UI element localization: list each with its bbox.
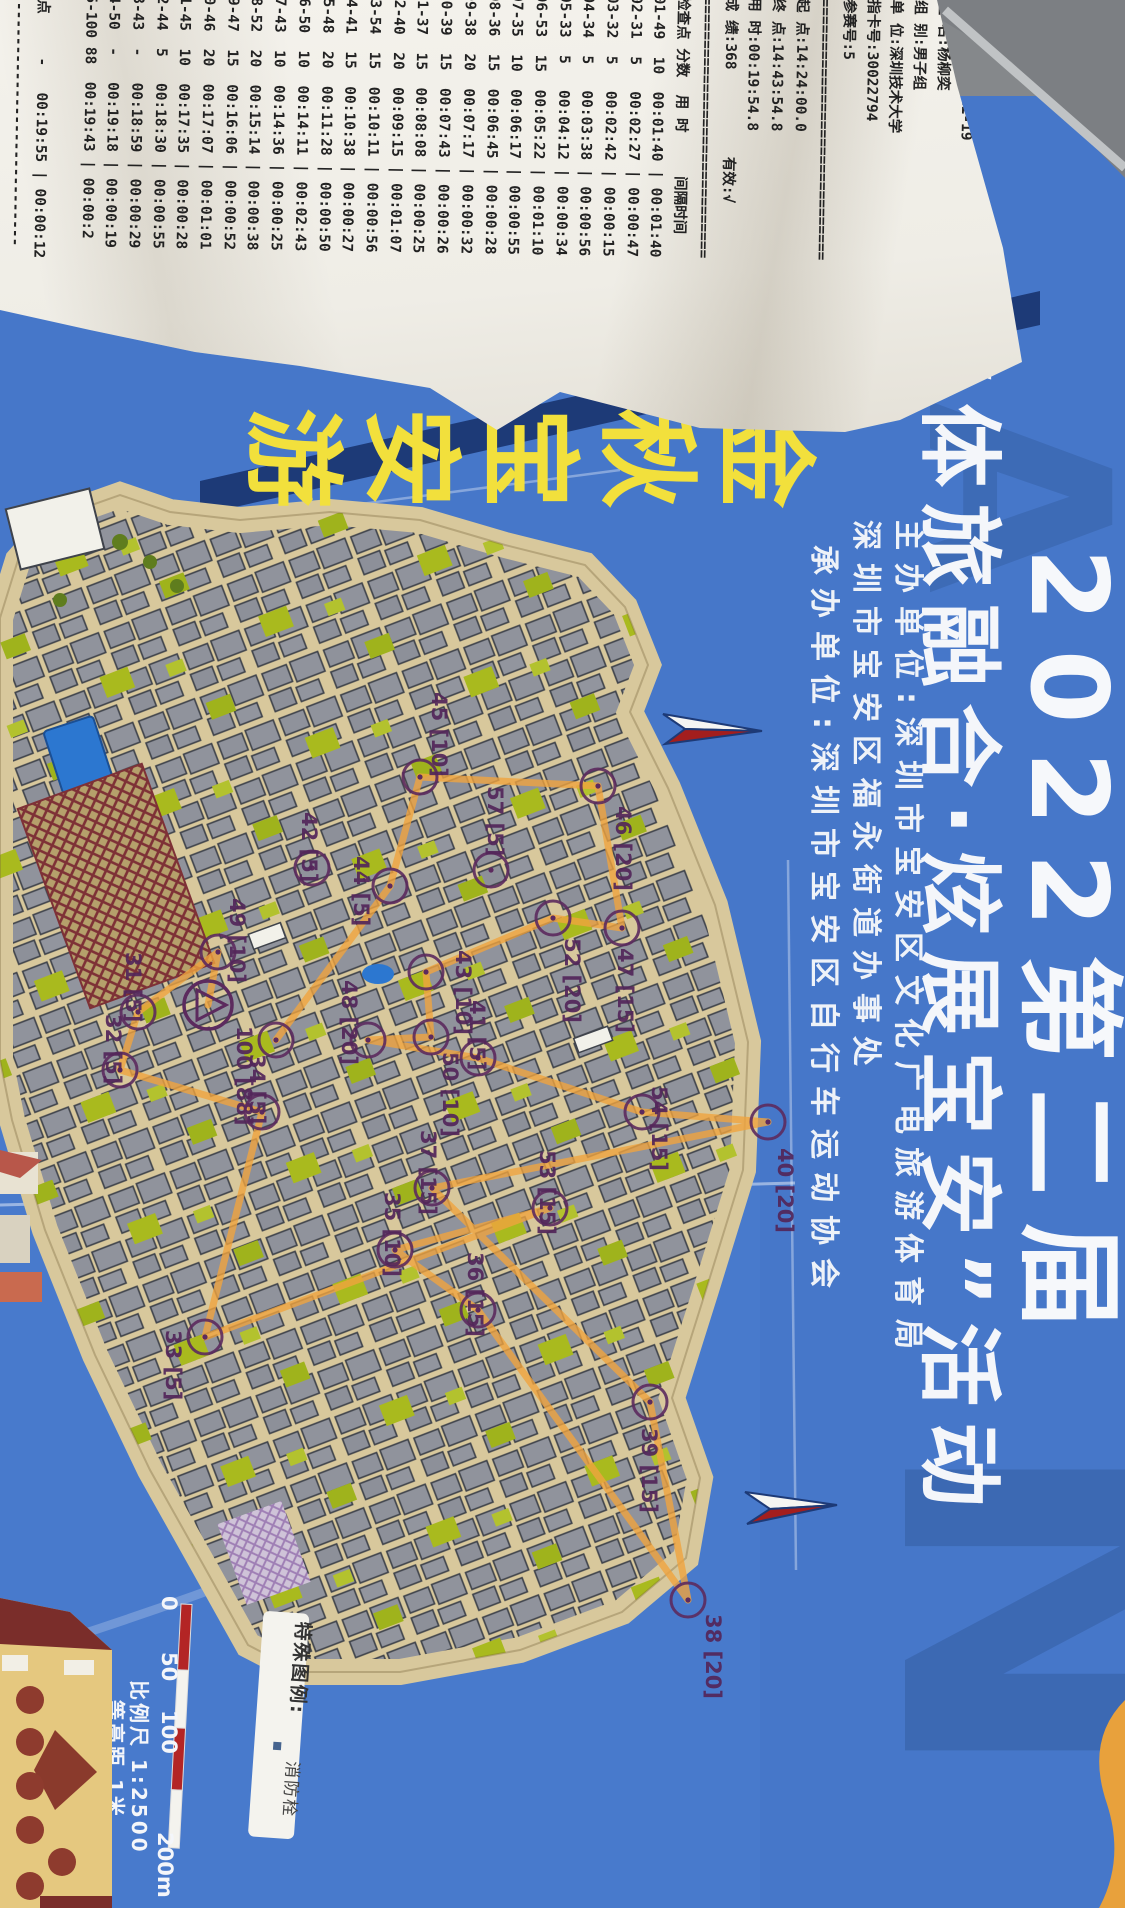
event-title-line1: 2022第二届 (1007, 548, 1125, 1357)
small-pool (362, 964, 394, 984)
control-label: 53 [15] (535, 1150, 559, 1235)
control-label: 32 [5] (101, 1014, 125, 1084)
control-label: 35 [10] (380, 1192, 404, 1277)
organizer-line-1: 主办单位:深圳市宝安区文化广电旅游体育局 (890, 520, 925, 1362)
control-label: 37 [15] (416, 1130, 440, 1215)
scale-tick-label: 0 (157, 1596, 181, 1611)
control-label: 45 [10] (427, 692, 451, 777)
control-label: 33 [5] (161, 1330, 185, 1400)
scale-ratio-label: 比例尺 1:2500 (127, 1680, 151, 1855)
control-label: 41 [5] (465, 1000, 489, 1070)
adjacent-panel-corner (0, 1598, 112, 1908)
receipt-text: 2022第二届 "体旅融合 炫展宝安" 活动 竞赛日:2022-11-19 姓 … (0, 0, 1026, 342)
organizer-line-3: 承办单位:深圳市宝安区自行车运动协会 (806, 545, 841, 1301)
control-label: 34 [5] (245, 1054, 269, 1124)
map-name-char: 游 (234, 408, 351, 508)
legend-item-label: 消防栓 (278, 1760, 302, 1818)
control-label: 52 [20] (560, 938, 584, 1023)
photo-canvas: { "colors":{"sheet_blue":"#4677c9","navy… (0, 0, 1125, 1908)
control-label: 31 [5] (121, 952, 145, 1022)
scale-tick-label: 50 (157, 1652, 181, 1681)
control-label: 50 [10] (438, 1052, 462, 1137)
control-label: 39 [15] (637, 1428, 661, 1513)
control-label: 42 [5] (297, 812, 321, 882)
fire-hydrant-icon (273, 1742, 282, 1751)
control-point: 41 [5] (461, 1000, 495, 1075)
control-label: 46 [20] (611, 806, 635, 891)
scale-tick-label: 100 (157, 1710, 181, 1754)
control-label: 57 [5] (483, 786, 507, 856)
control-label: 54 [15] (647, 1086, 671, 1171)
control-label: 47 [15] (613, 948, 637, 1033)
control-label: 38 [20] (701, 1614, 725, 1699)
map-name-char: 安 (352, 408, 469, 508)
organizer-line-2: 深圳市宝安区福永街道办事处 (848, 520, 883, 1079)
control-label: 49 [10] (225, 898, 249, 983)
control-label: 36 [15] (463, 1252, 487, 1337)
control-label: 40 [20] (773, 1148, 797, 1233)
control-label: 48 [20] (337, 980, 361, 1065)
scale-tick-label: 200m (153, 1832, 177, 1898)
control-label: 44 [5] (349, 856, 373, 926)
